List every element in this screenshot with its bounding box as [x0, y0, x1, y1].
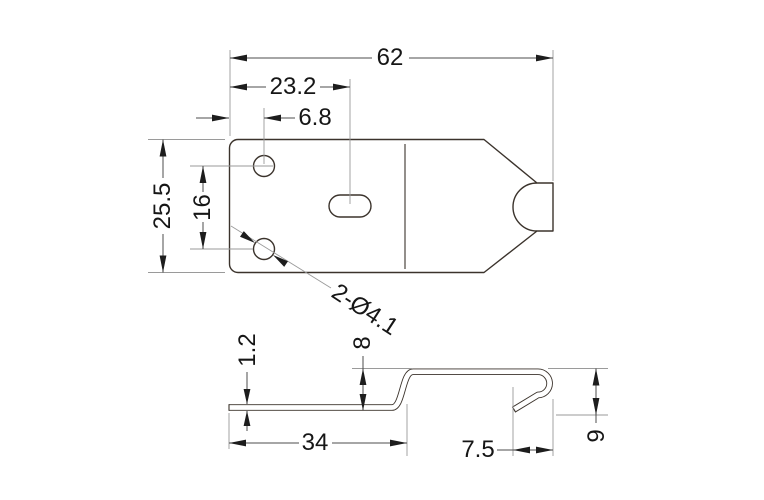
dim-thickness: 1.2 — [234, 333, 261, 431]
dim-label-base-length: 34 — [302, 429, 329, 456]
dim-label-overall-width: 62 — [377, 44, 404, 71]
dim-label-hole-diameter: 2-Ø4.1 — [327, 278, 403, 341]
arrowhead-left — [513, 447, 530, 454]
drawing-page: 62 23.2 6.8 25.5 16 — [0, 0, 764, 500]
sheet-profile — [229, 372, 550, 410]
dim-step-height: 8 — [349, 336, 376, 410]
latch-arc — [513, 183, 537, 231]
top-view: 62 23.2 6.8 25.5 16 — [148, 44, 553, 341]
arrowhead-bottom — [200, 232, 207, 249]
dim-label-hole-offset: 6.8 — [298, 104, 331, 131]
arrowhead-right — [390, 440, 407, 447]
arrowhead-top — [593, 369, 600, 386]
sheet-profile-core — [229, 372, 550, 410]
dim-label-step-height: 8 — [349, 336, 376, 349]
dim-label-hole-spacing: 16 — [189, 194, 216, 221]
arrowhead-right — [264, 115, 281, 122]
dim-slot-offset: 23.2 — [230, 73, 350, 100]
dim-hook-height: 9 — [583, 369, 610, 443]
dim-hole-spacing: 16 — [189, 166, 216, 249]
dim-label-hook-height: 9 — [583, 429, 610, 442]
dim-label-slot-offset: 23.2 — [270, 73, 317, 100]
arrowhead-bottom — [160, 256, 167, 273]
dim-hook-width: 7.5 — [461, 436, 553, 463]
side-view: 1.2 8 34 7.5 9 — [229, 333, 610, 463]
part-outline — [230, 140, 554, 273]
arrowhead-right — [536, 447, 553, 454]
arrowhead-top — [200, 166, 207, 183]
dim-label-hook-width: 7.5 — [461, 436, 494, 463]
callout-hole-diameter: 2-Ø4.1 — [231, 226, 403, 341]
arrowhead-up — [360, 369, 367, 386]
dim-label-overall-height: 25.5 — [149, 183, 176, 230]
dim-overall-height: 25.5 — [149, 140, 176, 273]
technical-drawing: 62 23.2 6.8 25.5 16 — [0, 0, 764, 500]
arrowhead-left — [212, 115, 229, 122]
arrowhead-bottom — [593, 398, 600, 415]
arrowhead-right — [536, 55, 553, 62]
arrowhead-left — [230, 55, 247, 62]
arrowhead-up — [244, 411, 251, 426]
arrowhead-left — [229, 440, 246, 447]
extension-lines-top-view — [148, 50, 553, 273]
dim-base-length: 34 — [229, 429, 407, 456]
arrowhead-right — [333, 84, 350, 91]
arrowhead-left — [230, 84, 247, 91]
arrowhead-down — [244, 389, 251, 404]
arrowhead-top — [160, 140, 167, 157]
dim-label-thickness: 1.2 — [234, 333, 261, 366]
dim-overall-width: 62 — [230, 44, 553, 71]
